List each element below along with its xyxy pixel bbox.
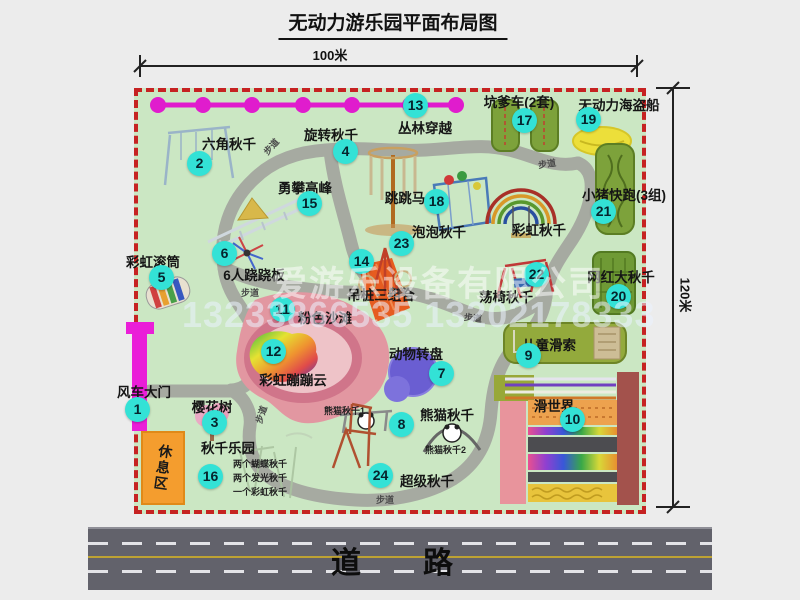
label-pink-beach: 粉色沙滩 (298, 307, 352, 327)
label-panda-swing-1: 熊猫秋千1 (324, 404, 365, 417)
marker-24: 24 (368, 463, 393, 488)
label-hexagon-swing: 六角秋千 (202, 133, 256, 153)
path-label-7: 步道 (376, 493, 394, 506)
width-dimension-label: 100米 (313, 45, 348, 64)
marker-1: 1 (125, 397, 150, 422)
label-web-swing: 网红大秋千 (587, 266, 655, 286)
marker-19: 19 (576, 107, 601, 132)
label-rainbow-cloud: 彩虹蹦蹦云 (259, 369, 327, 389)
marker-17: 17 (512, 108, 537, 133)
marker-10: 10 (560, 407, 585, 432)
swing-note-3: 一个彩虹秋千 (233, 485, 287, 498)
path-label-6: 步道 (463, 310, 482, 325)
park-layout-map: 无动力游乐园平面布局图 100米 120米 休息区 风车大门 六角秋千 樱花树 … (0, 0, 800, 600)
label-jumping-horse: 跳跳马 (385, 187, 426, 207)
path-label-2: 步道 (537, 156, 557, 171)
marker-14: 14 (349, 249, 374, 274)
road-band: 道 路 (88, 527, 712, 590)
marker-5: 5 (149, 265, 174, 290)
label-seesaw: 6人跷跷板 (223, 264, 285, 284)
slide-world-area (494, 372, 639, 505)
marker-3: 3 (202, 410, 227, 435)
marker-12: 12 (261, 339, 286, 364)
marker-22: 22 (524, 262, 549, 287)
marker-11: 11 (270, 297, 295, 322)
label-panda-swing-2: 熊猫秋千2 (425, 443, 466, 456)
marker-7: 7 (429, 361, 454, 386)
label-swing-paradise: 秋千乐园 (201, 437, 255, 457)
label-super-swing: 超级秋千 (400, 470, 454, 490)
marker-6: 6 (212, 241, 237, 266)
marker-20: 20 (606, 284, 631, 309)
page-title: 无动力游乐园平面布局图 (278, 8, 507, 40)
rest-area-label: 休息区 (150, 443, 176, 493)
road-label: 道 路 (331, 538, 469, 582)
marker-21: 21 (591, 199, 616, 224)
marker-8: 8 (389, 412, 414, 437)
height-dimension-label: 120米 (677, 278, 696, 313)
marker-23: 23 (389, 231, 414, 256)
path-label-5: 步道 (388, 285, 406, 298)
marker-13: 13 (403, 93, 428, 118)
label-swing-chair: 荡椅秋千 (479, 286, 533, 306)
label-rainbow-swing: 彩虹秋千 (512, 219, 566, 239)
label-jungle-crossing: 丛林穿越 (398, 117, 452, 137)
marker-4: 4 (333, 139, 358, 164)
label-panda-swing: 熊猫秋千 (420, 404, 474, 424)
swing-note-1: 两个蝴蝶秋千 (233, 457, 287, 470)
marker-18: 18 (424, 189, 449, 214)
marker-2: 2 (187, 151, 212, 176)
rest-area: 休息区 (141, 431, 185, 505)
marker-16: 16 (198, 464, 223, 489)
marker-15: 15 (297, 191, 322, 216)
marker-9: 9 (516, 343, 541, 368)
label-animal-turntable: 动物转盘 (389, 343, 443, 363)
path-label-3: 步道 (241, 286, 259, 299)
swing-note-2: 两个发光秋千 (233, 471, 287, 484)
label-bubble-swing: 泡泡秋千 (412, 221, 466, 241)
